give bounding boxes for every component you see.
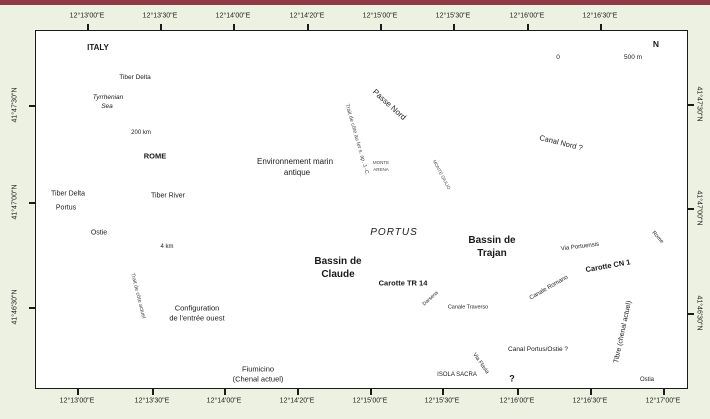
inset-italy-sea-label-1: Tyrrhenian [93,95,124,102]
axis-label-top: 12°14'00"E [216,13,251,20]
axis-label-bottom: 12°15'30"E [425,398,460,405]
canal-portus-ostie-label: Canal Portus/Ostie ? [508,347,568,354]
axis-label-bottom: 12°16'30"E [573,398,608,405]
axis-label-right: 41°47'30"N [696,86,703,121]
axis-label-top: 12°16'00"E [510,13,545,20]
bassin-claude-label-2: Claude [321,270,354,280]
axis-label-top: 12°13'30"E [143,13,178,20]
axis-label-left: 41°46'30"N [12,289,19,324]
west-entrance-label-1: Configuration [175,304,220,312]
fiumicino-label-2: (Chenal actuel) [233,375,284,383]
axis-tick [663,389,665,395]
axis-label-bottom: 12°14'00"E [207,398,242,405]
axis-tick [442,389,444,395]
axis-label-bottom: 12°13'00"E [60,398,95,405]
inset-italy-scale-label: 200 km [131,130,151,136]
top-color-bar [0,0,710,5]
inset-italy-tiber-delta-label: Tiber Delta [119,75,151,82]
axis-label-left: 41°47'30"N [12,87,19,122]
axis-tick [370,389,372,395]
axis-tick [87,24,89,30]
axis-label-top: 12°14'20"E [290,13,325,20]
axis-tick [688,208,694,210]
axis-tick [527,24,529,30]
axis-label-right: 41°46'30"N [696,295,703,330]
axis-tick [600,24,602,30]
tyrrhenian-sea-label: Mer tyrrhénienne [54,322,111,329]
canale-traverso-label: Canale Traverso [448,305,488,311]
axis-label-top: 12°13'00"E [70,13,105,20]
axis-label-top: 12°15'30"E [436,13,471,20]
axis-tick [517,389,519,395]
marine-environment-label-1: Environnement marin [257,158,333,166]
marine-environment-label-2: antique [284,169,310,177]
inset-delta-tiber-delta-label: Tiber Delta [51,191,85,198]
axis-tick [380,24,382,30]
axis-tick [688,313,694,315]
canal-question-mark: ? [509,375,515,384]
axis-tick [29,307,35,309]
west-entrance-label-2: de l'entrée ouest [169,314,224,322]
axis-tick [688,104,694,106]
axis-label-bottom: 12°14'20"E [280,398,315,405]
axis-label-right: 41°47'00"N [696,190,703,225]
axis-tick [233,24,235,30]
monte-arena-label-1: MONTE [373,161,389,166]
axis-tick [307,24,309,30]
axis-tick [590,389,592,395]
scale-bar-max-label: 500 m [624,55,642,62]
inset-delta-ostie-label: Ostie [91,230,107,237]
inset-delta-scale-label: 4 km [160,244,173,250]
axis-label-top: 12°15'00"E [363,13,398,20]
inset-delta-portus-label: Portus [56,205,76,212]
inset-italy-sea-label-2: Sea [101,104,113,111]
axis-tick [160,24,162,30]
axis-label-bottom: 12°13'30"E [135,398,170,405]
inset-italy-title: ITALY [87,44,109,52]
axis-tick [77,389,79,395]
scale-bar-zero-label: 0 [556,55,560,62]
inset-delta-tiber-river-label: Tiber River [151,193,185,200]
inset-delta-rome-label: ROME [144,152,167,160]
axis-tick [297,389,299,395]
north-label: N [653,40,659,49]
axis-label-bottom: 12°17'00"E [646,398,681,405]
axis-tick [29,202,35,204]
bassin-trajan-label-2: Trajan [477,249,506,259]
axis-label-top: 12°16'30"E [583,13,618,20]
axis-tick [29,105,35,107]
axis-label-bottom: 12°16'00"E [500,398,535,405]
ostia-direction-label: Ostia [640,377,654,383]
axis-label-bottom: 12°15'00"E [353,398,388,405]
axis-label-left: 41°47'00"N [12,184,19,219]
isola-sacra-label: ISOLA SACRA [437,372,477,378]
carotte-tr14-label: Carotte TR 14 [379,279,428,287]
monte-arena-label-2: ARENA [373,168,389,173]
portus-label: PORTUS [370,228,418,238]
map-frame [35,30,688,389]
bassin-claude-label-1: Bassin de [314,257,361,267]
axis-tick [152,389,154,395]
fiumicino-label-1: Fiumicino [242,365,274,373]
bassin-trajan-label-1: Bassin de [468,236,515,246]
axis-tick [224,389,226,395]
axis-tick [453,24,455,30]
